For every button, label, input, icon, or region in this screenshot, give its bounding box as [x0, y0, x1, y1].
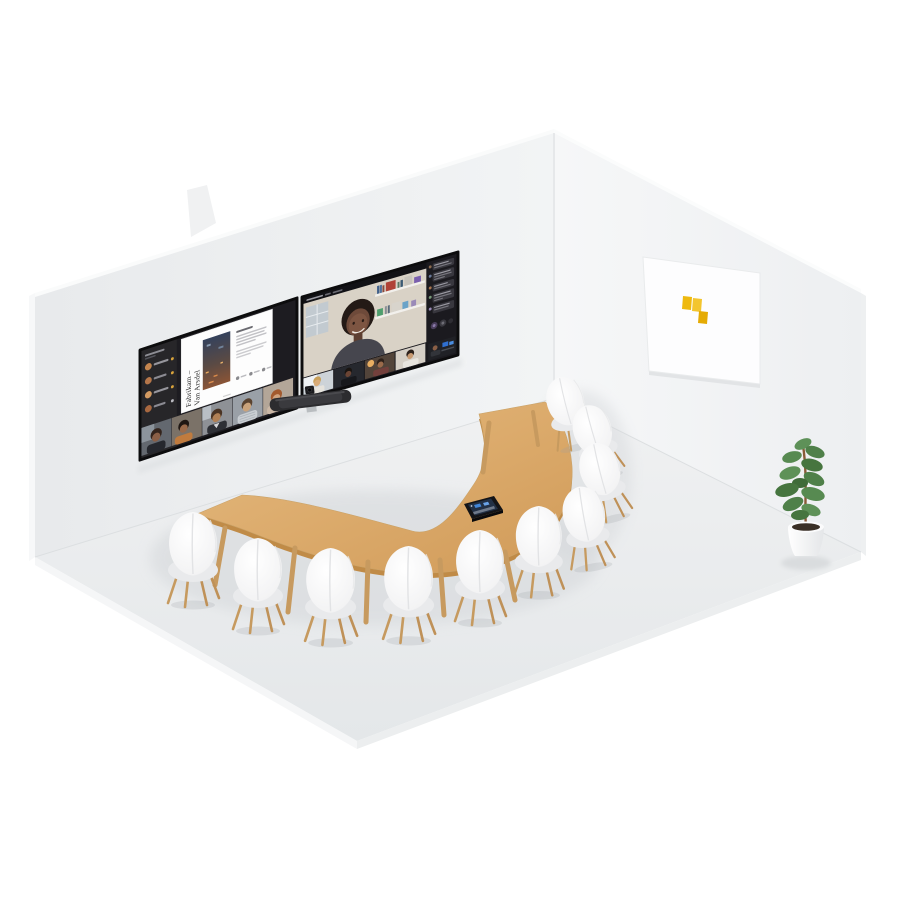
- meeting-room-render: Fabrikam – Van Arsdel: [0, 0, 900, 900]
- sticky-note-3: [698, 311, 708, 324]
- document-title-line2: Van Arsdel: [193, 369, 202, 407]
- room-scene: Fabrikam – Van Arsdel: [0, 0, 900, 900]
- document-photo: [203, 331, 230, 390]
- sticky-note-2: [692, 298, 702, 312]
- document-title-line1: Fabrikam –: [184, 369, 193, 408]
- sticky-note-1: [682, 296, 692, 310]
- chat-panel: [427, 254, 456, 362]
- plant-soil: [792, 523, 820, 531]
- whiteboard: [643, 257, 760, 388]
